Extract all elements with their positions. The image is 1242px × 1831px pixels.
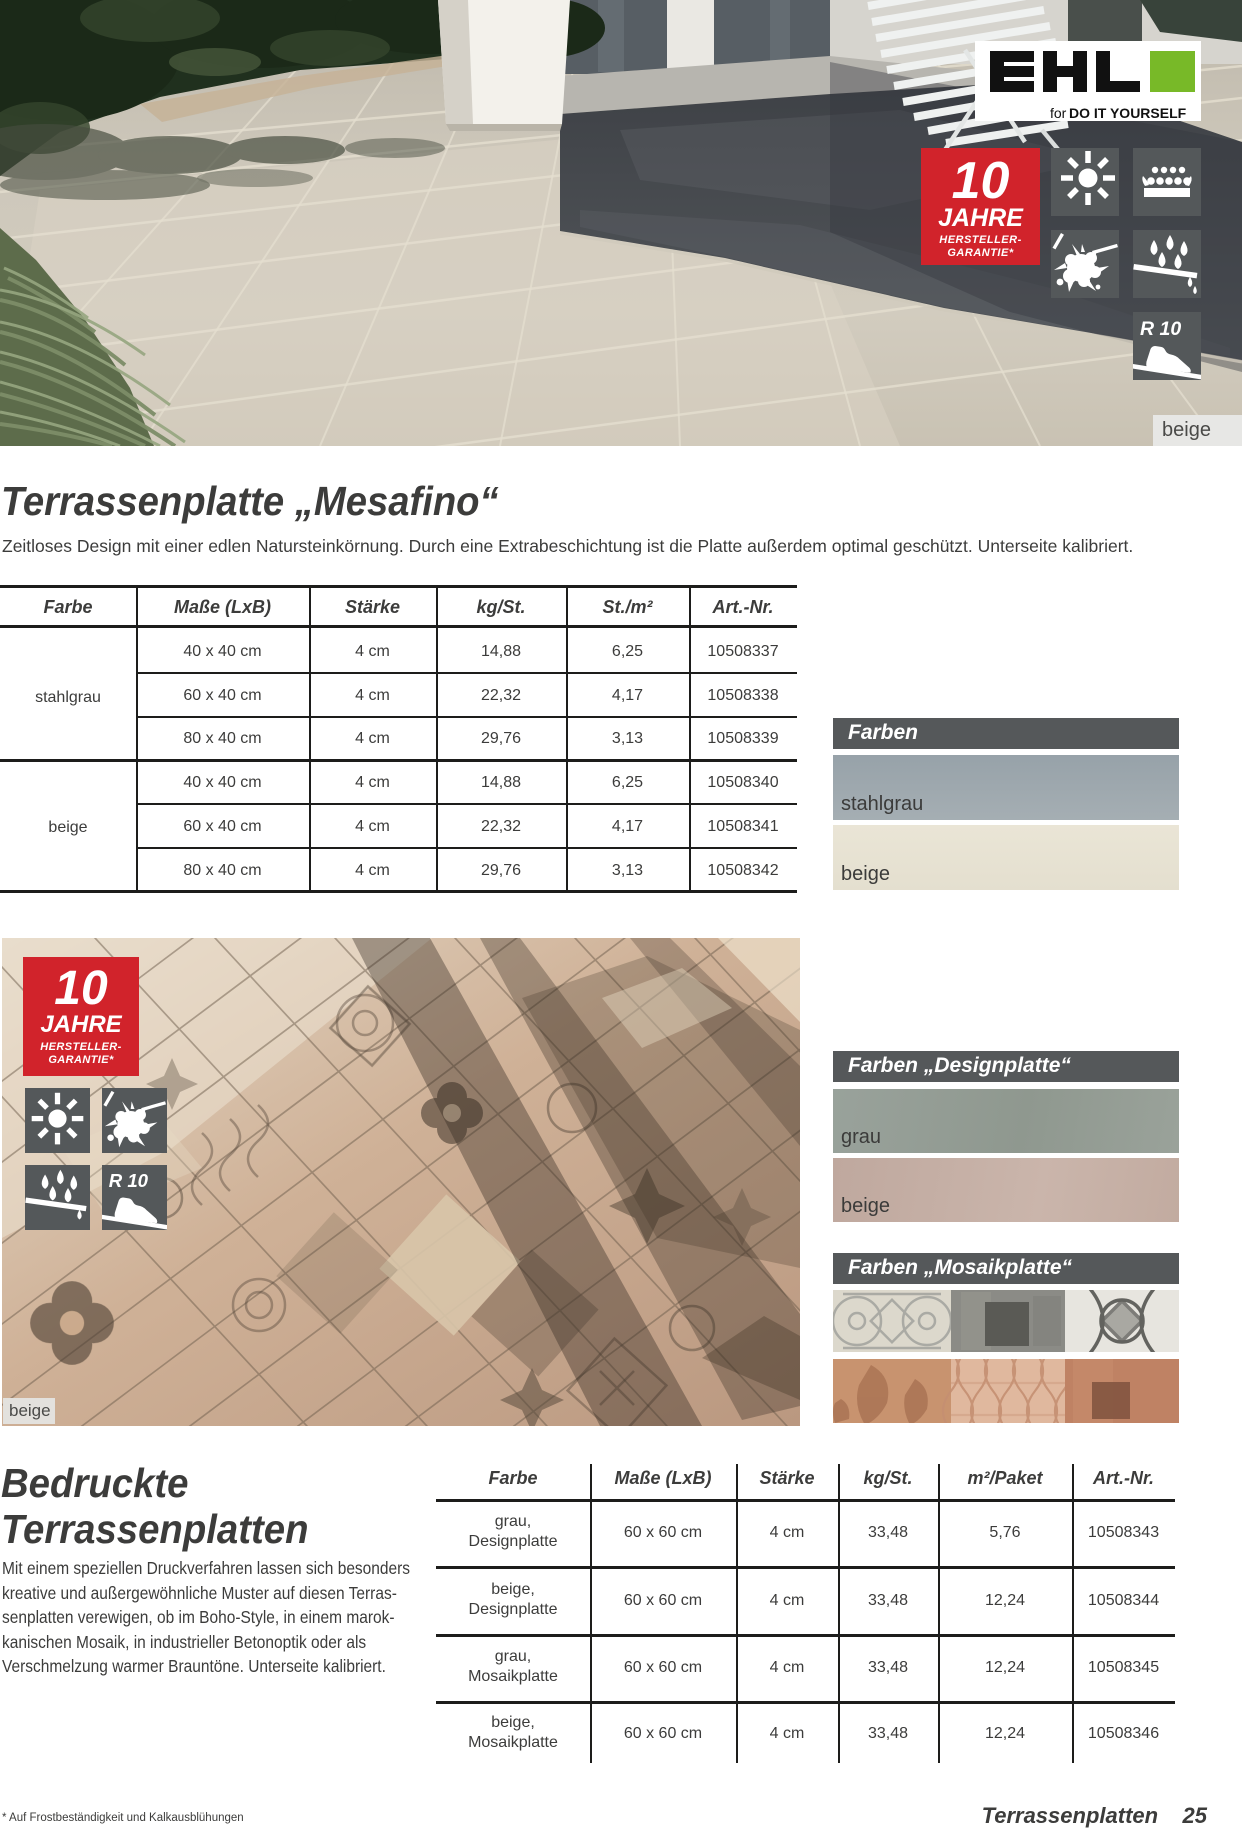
svg-text:for: for	[1050, 105, 1067, 121]
svg-text:R 10: R 10	[1140, 318, 1181, 340]
svg-text:DO IT YOURSELF: DO IT YOURSELF	[1069, 105, 1187, 121]
svg-text:R 10: R 10	[109, 1170, 149, 1191]
